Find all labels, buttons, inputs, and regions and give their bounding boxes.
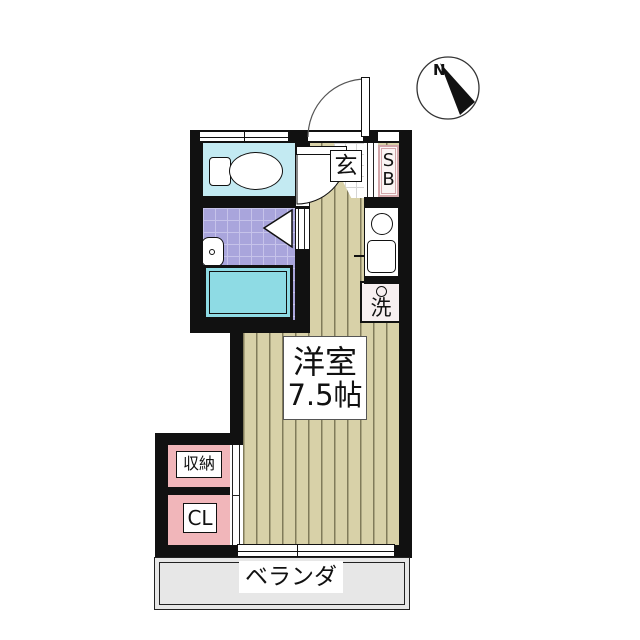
wall-left xyxy=(190,130,203,333)
shoebox: S B xyxy=(378,145,399,197)
wall-right xyxy=(399,130,412,558)
bathroom-door-opening xyxy=(296,209,309,249)
entrance-label-box: 玄 xyxy=(330,150,362,182)
storage-label-box: 収納 xyxy=(176,451,222,478)
wall-bath-bottom xyxy=(190,320,310,333)
closet-label: CL xyxy=(187,508,212,529)
veranda-label: ベランダ xyxy=(245,565,337,589)
shoebox-window xyxy=(378,131,399,142)
kitchen-unit xyxy=(364,207,399,277)
wall-under-shoebox xyxy=(364,197,399,207)
wall-under-kitchen xyxy=(364,276,399,284)
washing-machine: 洗 xyxy=(360,281,402,323)
closet-label-box: CL xyxy=(183,503,217,533)
bathroom-sink-icon xyxy=(201,237,224,267)
toilet-bowl-icon xyxy=(229,152,283,190)
burner-icon xyxy=(371,213,393,235)
bathtub xyxy=(203,265,293,320)
kitchen-sink-icon xyxy=(367,240,396,273)
veranda: ベランダ xyxy=(154,557,410,610)
main-room-label-box: 洋室 7.5帖 xyxy=(283,336,367,420)
main-room-name: 洋室 xyxy=(293,346,357,380)
entrance-label: 玄 xyxy=(335,154,358,178)
compass: N xyxy=(413,53,483,123)
washer-label: 洗 xyxy=(371,297,392,319)
wall-closet-top xyxy=(155,433,243,445)
toilet-window xyxy=(199,131,289,142)
wall-closet-divider xyxy=(168,487,230,495)
closet-sliding-door xyxy=(230,445,243,545)
wall-room-left xyxy=(230,320,243,445)
shoebox-inner-line: S B xyxy=(381,148,396,194)
compass-north-label: N xyxy=(433,61,446,79)
bathtub-inner-line xyxy=(209,271,287,314)
shoebox-door xyxy=(364,143,378,197)
floor-plan: S B 洗 収納 CL xyxy=(0,0,640,640)
faucet-mark xyxy=(354,255,365,257)
compass-circle xyxy=(417,57,479,119)
storage-label: 収納 xyxy=(183,456,215,473)
toilet-tank-icon xyxy=(209,157,231,186)
sink-drain-icon xyxy=(209,249,215,255)
wall-closet-left xyxy=(155,433,168,558)
shoebox-label-b: B xyxy=(382,171,394,190)
main-room-size: 7.5帖 xyxy=(287,380,362,410)
bathroom-door-marker xyxy=(261,207,295,251)
veranda-label-box: ベランダ xyxy=(239,561,343,593)
veranda-window xyxy=(237,544,395,557)
entrance-door-leaf xyxy=(361,77,370,137)
